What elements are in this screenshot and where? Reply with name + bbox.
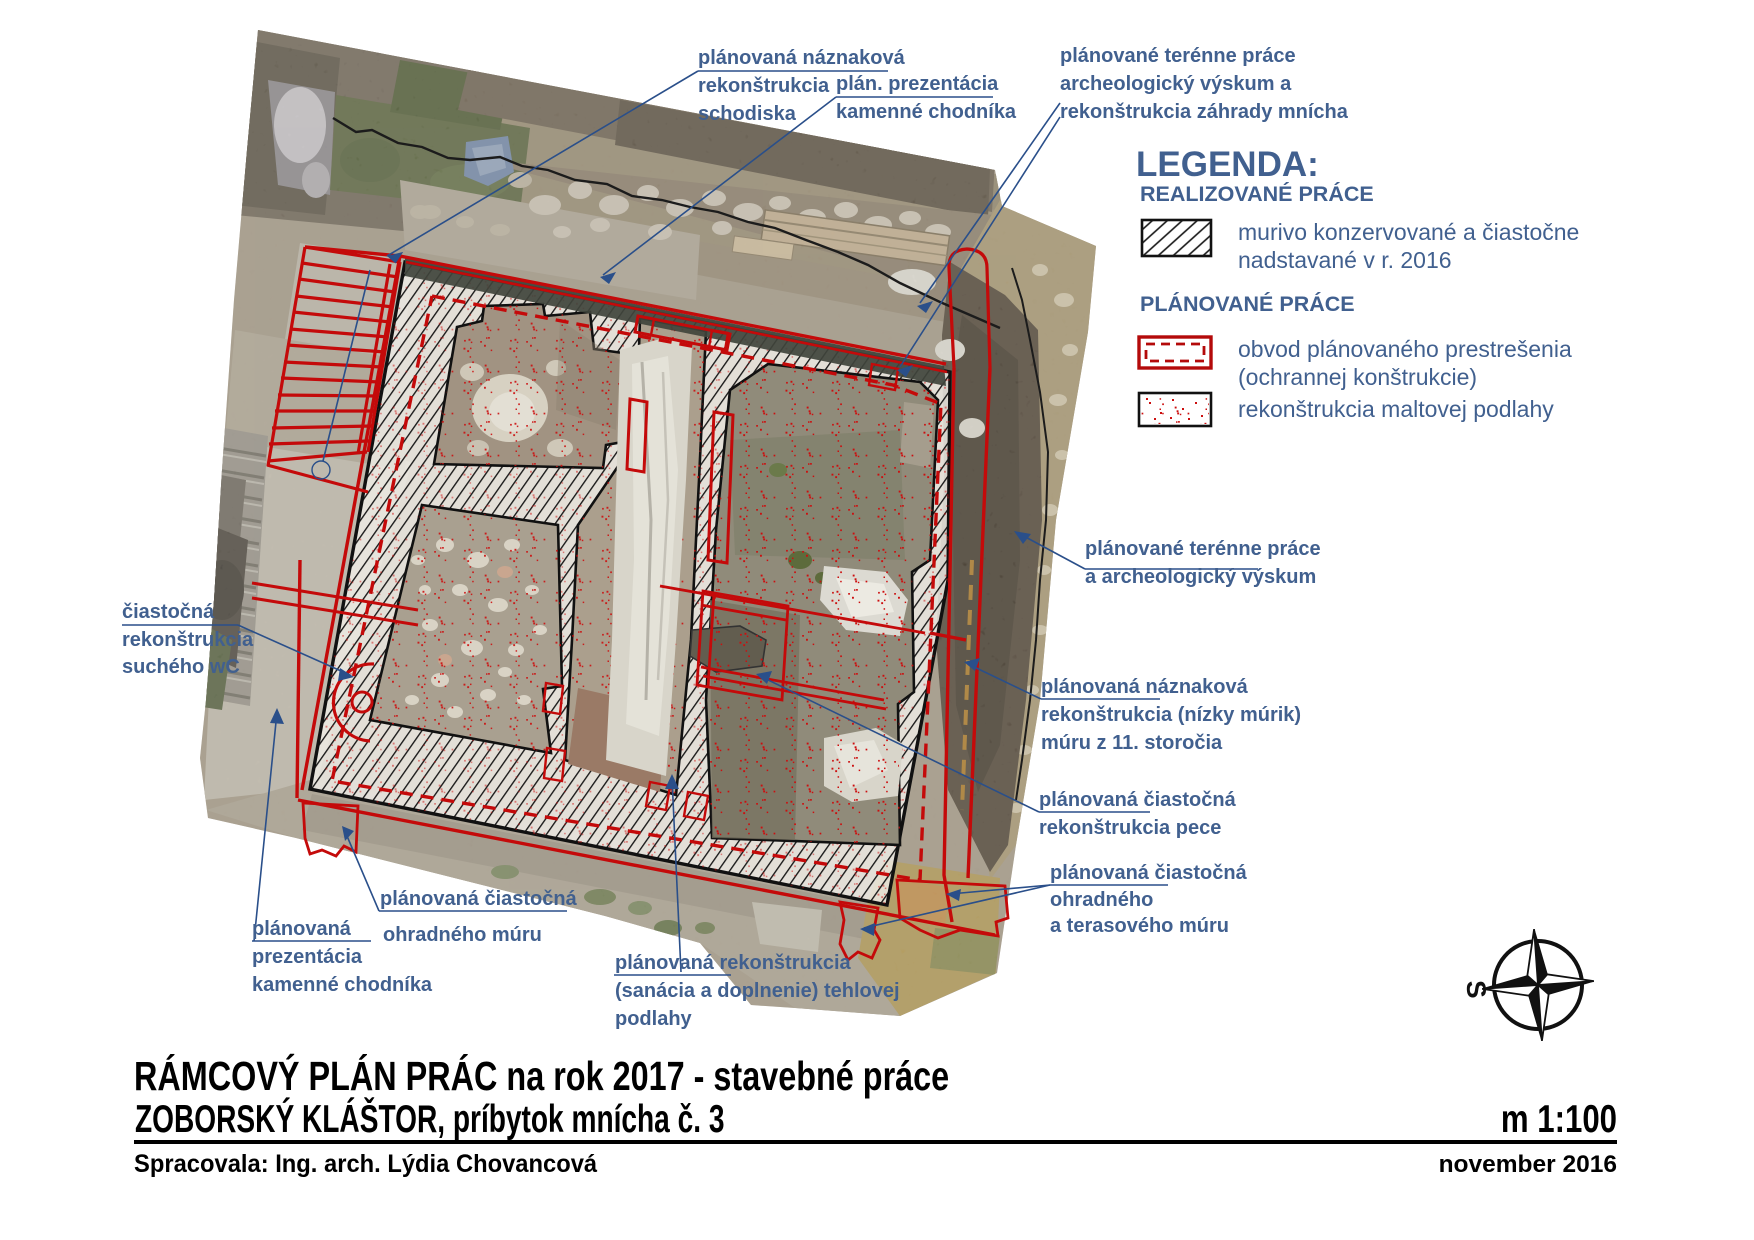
svg-text:november 2016: november 2016 xyxy=(1439,1151,1617,1178)
svg-text:ohradného: ohradného xyxy=(1050,889,1153,911)
svg-text:múru z 11. storočia: múru z 11. storočia xyxy=(1041,732,1223,754)
svg-text:rekonštrukcia (nízky múrik): rekonštrukcia (nízky múrik) xyxy=(1041,704,1301,726)
svg-text:rekonštrukcia: rekonštrukcia xyxy=(122,629,254,651)
svg-text:rekonštrukcia záhrady mnícha: rekonštrukcia záhrady mnícha xyxy=(1060,101,1349,123)
svg-text:kamenné chodníka: kamenné chodníka xyxy=(836,101,1017,123)
svg-text:a archeologický výskum: a archeologický výskum xyxy=(1085,566,1316,588)
svg-text:plánované terénne práce: plánované terénne práce xyxy=(1060,45,1296,67)
svg-text:plánovaná čiastočná: plánovaná čiastočná xyxy=(1039,789,1237,811)
svg-text:m 1:100: m 1:100 xyxy=(1501,1098,1617,1141)
svg-text:plánovaná náznaková: plánovaná náznaková xyxy=(1041,676,1249,698)
svg-text:obvod plánovaného prestrešenia: obvod plánovaného prestrešenia xyxy=(1238,336,1572,362)
svg-text:rekonštrukcia pece: rekonštrukcia pece xyxy=(1039,817,1221,839)
svg-text:LEGENDA:: LEGENDA: xyxy=(1136,145,1319,184)
svg-text:kamenné chodníka: kamenné chodníka xyxy=(252,974,433,996)
svg-text:schodiska: schodiska xyxy=(698,103,797,125)
svg-text:prezentácia: prezentácia xyxy=(252,946,363,968)
svg-text:RÁMCOVÝ PLÁN PRÁC na rok 2017: RÁMCOVÝ PLÁN PRÁC na rok 2017 - stavebné… xyxy=(134,1053,949,1098)
svg-text:ZOBORSKÝ KLÁŠTOR, príbytok mní: ZOBORSKÝ KLÁŠTOR, príbytok mnícha č. 3 xyxy=(135,1097,724,1142)
svg-text:plánovaná náznaková: plánovaná náznaková xyxy=(698,47,906,69)
svg-text:(sanácia a doplnenie) tehlovej: (sanácia a doplnenie) tehlovej xyxy=(615,980,900,1002)
svg-text:PLÁNOVANÉ PRÁCE: PLÁNOVANÉ PRÁCE xyxy=(1140,291,1355,316)
svg-text:ohradného múru: ohradného múru xyxy=(383,924,542,946)
svg-text:plánované terénne práce: plánované terénne práce xyxy=(1085,538,1321,560)
svg-text:nadstavané v r. 2016: nadstavané v r. 2016 xyxy=(1238,247,1452,273)
svg-text:REALIZOVANÉ PRÁCE: REALIZOVANÉ PRÁCE xyxy=(1140,181,1374,206)
svg-text:plánovaná čiastočná: plánovaná čiastočná xyxy=(380,888,578,910)
svg-text:a terasového múru: a terasového múru xyxy=(1050,915,1229,937)
svg-text:archeologický výskum a: archeologický výskum a xyxy=(1060,73,1292,95)
svg-text:murivo konzervované a čiastočn: murivo konzervované a čiastočne xyxy=(1238,219,1579,245)
svg-text:S: S xyxy=(1461,979,1492,999)
svg-text:Spracovala: Ing. arch. Lýdia C: Spracovala: Ing. arch. Lýdia Chovancová xyxy=(134,1150,598,1178)
svg-text:rekonštrukcia maltovej podlahy: rekonštrukcia maltovej podlahy xyxy=(1238,396,1554,422)
svg-text:plánovaná čiastočná: plánovaná čiastočná xyxy=(1050,862,1248,884)
svg-text:plán. prezentácia: plán. prezentácia xyxy=(836,73,999,95)
svg-text:suchého wC: suchého wC xyxy=(122,656,240,678)
svg-text:plánovaná rekonštrukcia: plánovaná rekonštrukcia xyxy=(615,952,852,974)
svg-text:rekonštrukcia: rekonštrukcia xyxy=(698,75,830,97)
svg-text:podlahy: podlahy xyxy=(615,1008,693,1030)
svg-text:čiastočná: čiastočná xyxy=(122,601,215,623)
svg-text:plánovaná: plánovaná xyxy=(252,918,352,940)
svg-text:(ochrannej konštrukcie): (ochrannej konštrukcie) xyxy=(1238,364,1477,390)
